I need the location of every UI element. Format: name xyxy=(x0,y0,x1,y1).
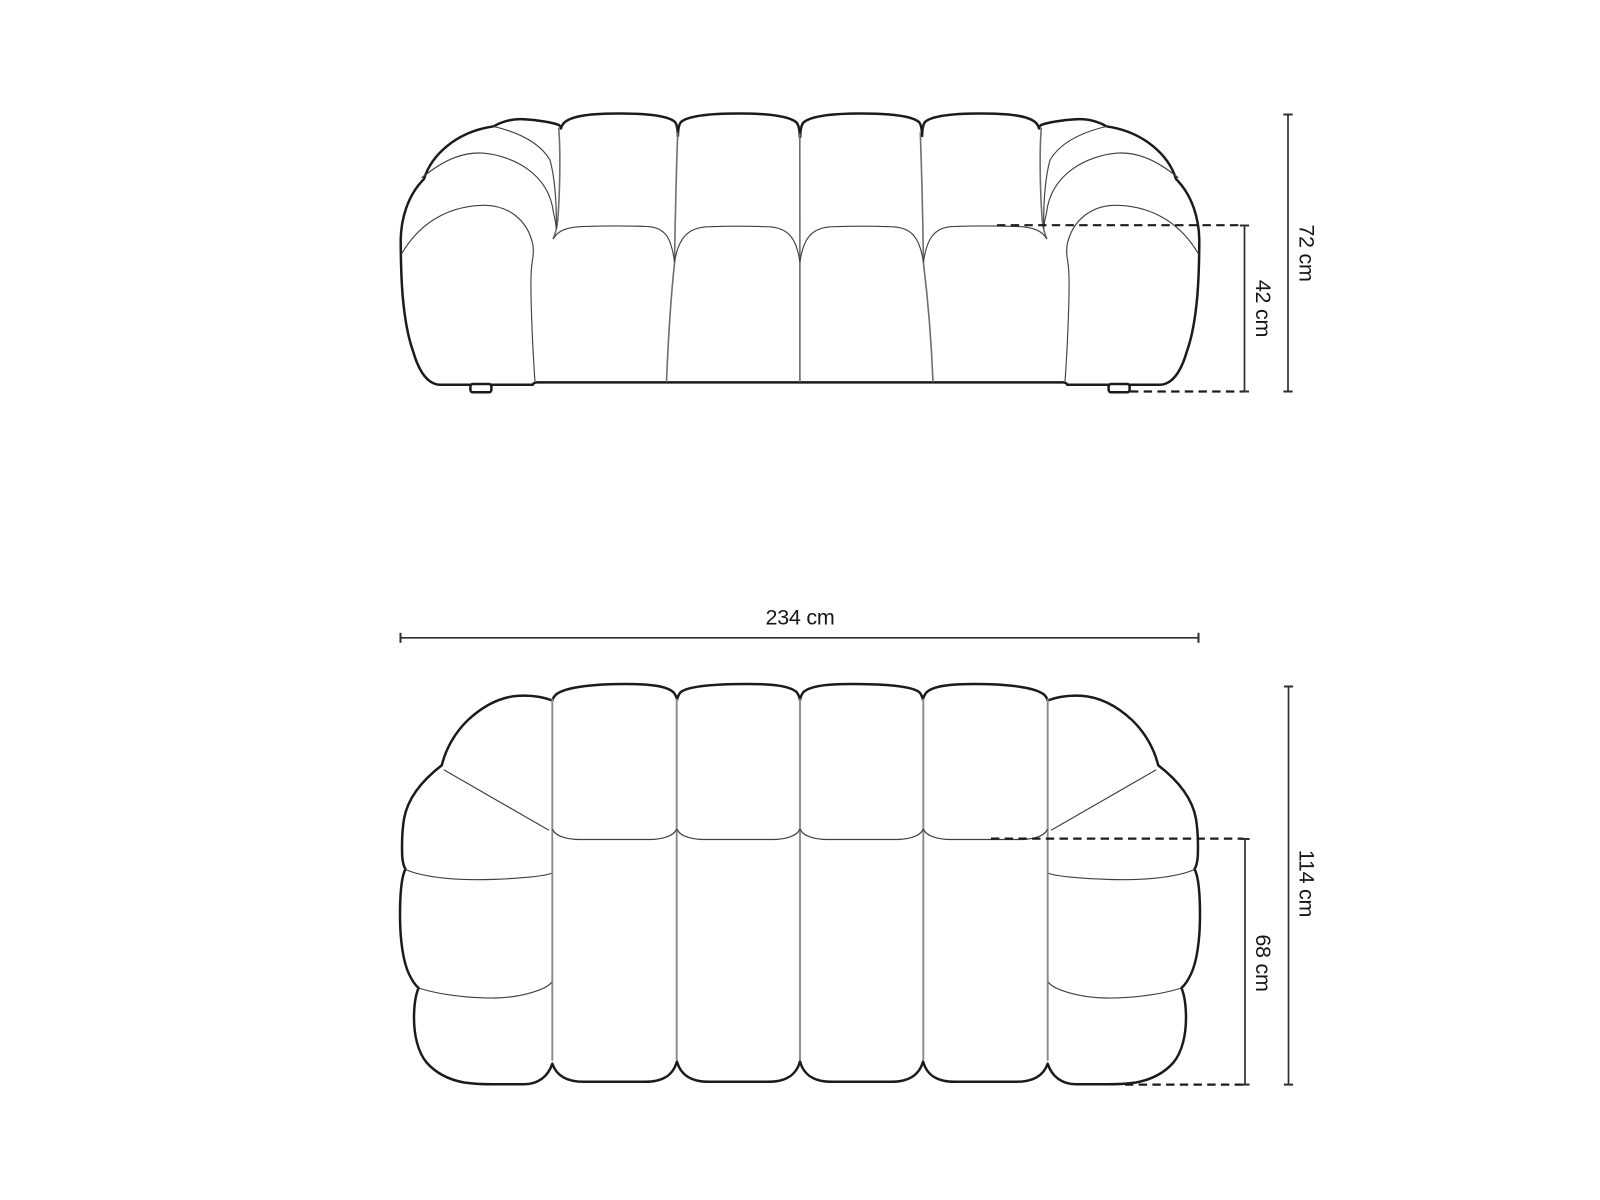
svg-text:114 cm: 114 cm xyxy=(1295,850,1319,917)
svg-text:234 cm: 234 cm xyxy=(765,605,834,629)
svg-text:68 cm: 68 cm xyxy=(1251,934,1275,991)
svg-text:42 cm: 42 cm xyxy=(1251,280,1275,337)
svg-text:72 cm: 72 cm xyxy=(1295,224,1319,281)
